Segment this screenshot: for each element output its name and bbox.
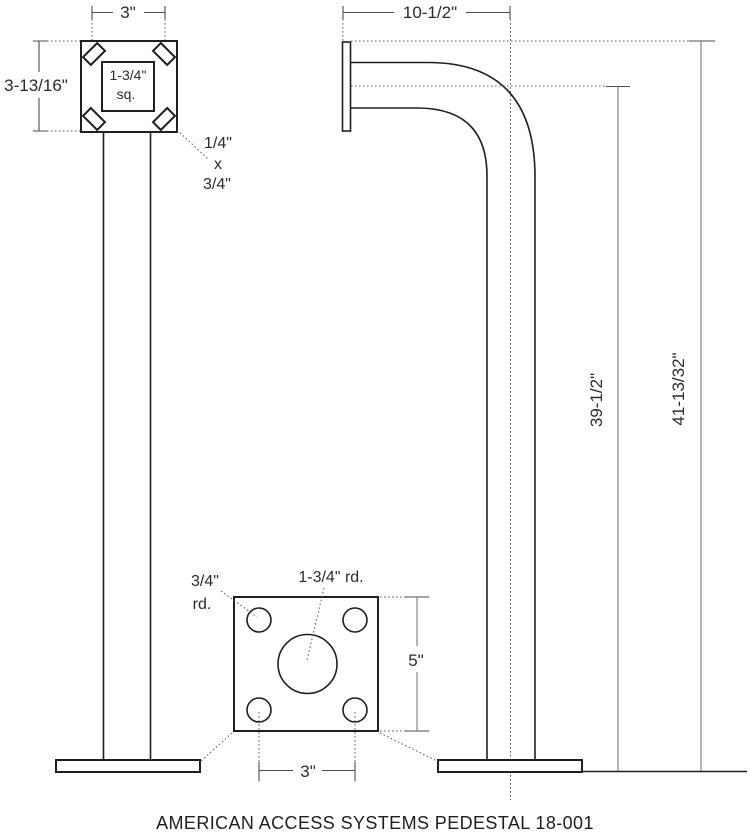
technical-drawing-page: 3" 3-13/16" 1-3/4" sq. [0,0,750,838]
plate-size-dimension: 5" [380,597,429,731]
center-square-label-line1: 1-3/4" [110,67,147,83]
center-square-label-line2: sq. [117,86,136,102]
front-center-square-tube: 1-3/4" sq. [102,62,154,111]
side-reach-dimension: 10-1/2" [343,3,510,41]
side-view: 10-1/2" 39-1/2" 41-13/32" [343,3,748,800]
leader-to-front-base [201,733,232,761]
base-plate-outline [234,597,378,731]
front-base-plate [56,760,200,772]
front-height-dim-label: 3-13/16" [4,76,68,95]
pedestal-drawing: 3" 3-13/16" 1-3/4" sq. [0,0,750,838]
hole-spacing-dim-label: 3" [300,762,316,781]
tab-size-label-line1: 1/4" [204,135,232,152]
reach-dim-label: 10-1/2" [403,3,457,22]
extension-line [92,19,165,42]
tab-size-label-line2: x [214,156,222,173]
corner-hole-label-line1: 3/4" [191,573,219,590]
front-height-dimension: 3-13/16" [4,41,80,131]
overall-height-dim-label: 41-13/32" [669,352,688,425]
center-hole-label: 1-3/4" rd. [298,569,363,586]
front-post [104,132,151,760]
front-width-dimension: 3" [92,3,165,42]
corner-hole-callout: 3/4" rd. [191,573,257,617]
side-center-height-dimension: 39-1/2" [587,87,630,772]
base-plate-detail: 3/4" rd. 1-3/4" rd. 5" 3" [191,569,437,784]
tab-size-label-line3: 3/4" [203,176,231,193]
center-height-dim-label: 39-1/2" [587,373,606,427]
front-view: 3" 3-13/16" 1-3/4" sq. [4,3,232,772]
drawing-title: AMERICAN ACCESS SYSTEMS PEDESTAL 18-001 [156,813,594,833]
side-base-plate [438,760,582,772]
leader-to-side-base [380,733,437,761]
side-mounting-flange [343,42,351,131]
front-width-dim-label: 3" [120,3,136,22]
corner-hole-label-line2: rd. [193,596,212,613]
front-tab-size-callout: 1/4" x 3/4" [177,130,232,193]
plate-size-dim-label: 5" [408,651,424,670]
side-overall-height-dimension: 41-13/32" [669,41,715,771]
